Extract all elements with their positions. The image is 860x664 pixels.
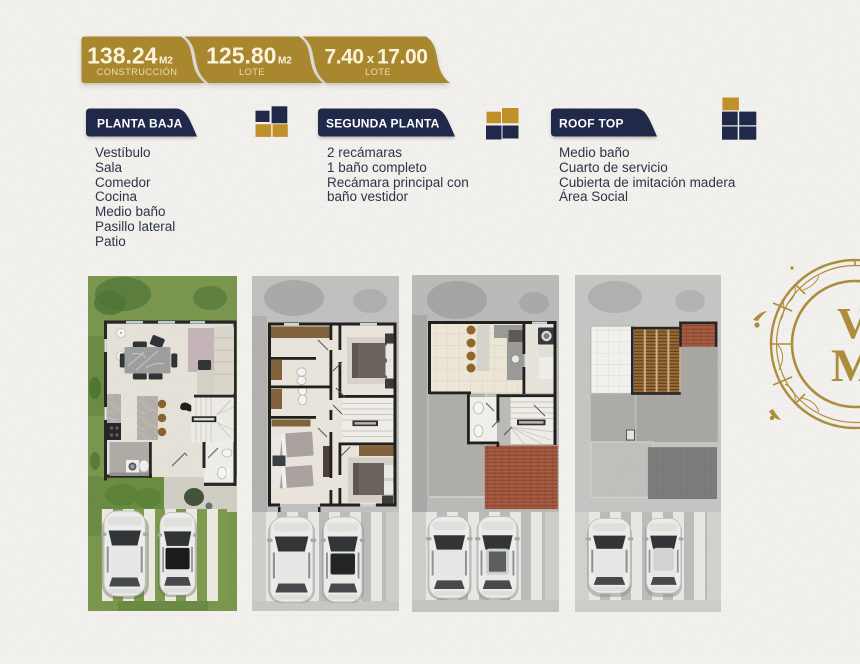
svg-text:7.40 x 17.00: 7.40 x 17.00 <box>324 46 427 69</box>
svg-text:PLANTA BAJA: PLANTA BAJA <box>97 117 183 131</box>
svg-text:CONSTRUCCIÓN: CONSTRUCCIÓN <box>97 67 178 77</box>
svg-text:SEGUNDA PLANTA: SEGUNDA PLANTA <box>326 117 440 131</box>
svg-text:M: M <box>831 340 860 392</box>
svg-text:ROOF TOP: ROOF TOP <box>559 117 624 131</box>
svg-text:LOTE: LOTE <box>239 67 265 77</box>
svg-text:LOTE: LOTE <box>365 67 391 77</box>
